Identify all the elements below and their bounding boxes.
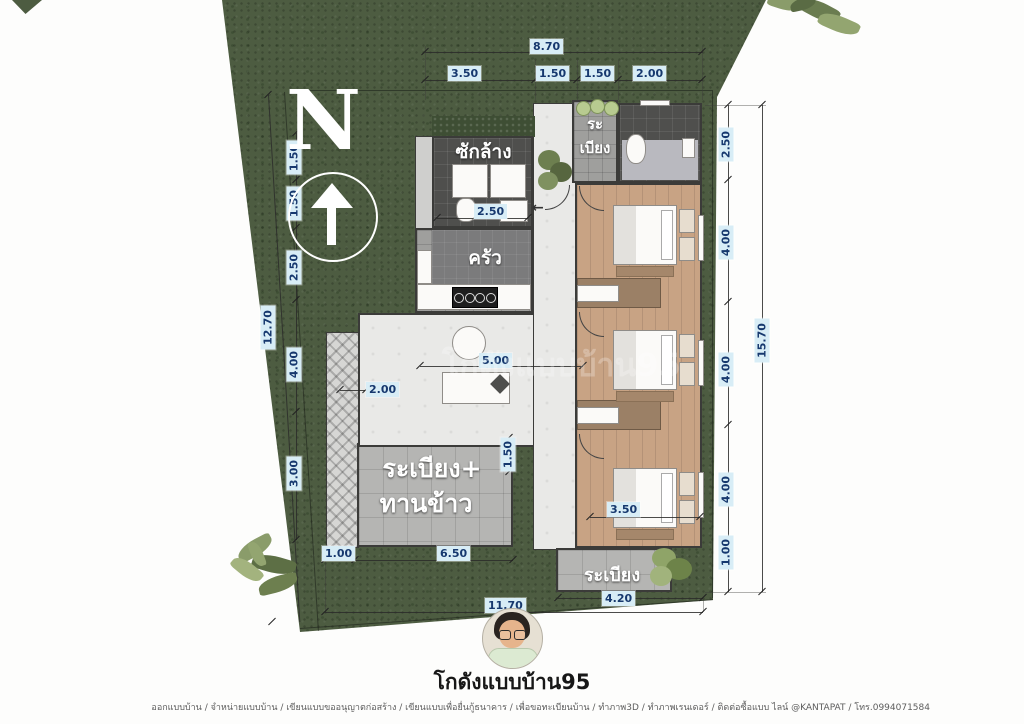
dim-left-3: 2.50 <box>287 251 302 285</box>
stove-icon <box>452 287 498 308</box>
bed-1 <box>613 205 677 265</box>
dim-right-total: 15.70 <box>755 319 770 363</box>
grass-corner-sliver <box>12 0 42 14</box>
dim-terrace-step: 1.50 <box>501 438 516 472</box>
nightstand-2a <box>679 334 695 358</box>
room-label-laundry: ซักล้าง <box>434 137 533 167</box>
bed-rug-3 <box>616 529 674 540</box>
dim-right-1: 2.50 <box>719 128 734 162</box>
dim-right-2: 4.00 <box>719 226 734 260</box>
window-bed3 <box>698 472 704 518</box>
nightstand-3b <box>679 500 695 524</box>
laundry-hedge <box>432 116 535 137</box>
bed-rug-1 <box>616 266 674 277</box>
washing-machine <box>452 164 488 198</box>
dim-right-5: 1.00 <box>719 536 734 570</box>
bathroom-sink <box>682 138 695 158</box>
dim-bottom-right: 4.20 <box>602 591 635 606</box>
dim-top-3: 1.50 <box>581 66 614 81</box>
dim-left-total: 12.70 <box>261 306 276 350</box>
toilet-icon <box>626 134 646 164</box>
dim-walkway-offset: 2.00 <box>366 382 399 397</box>
washing-machine-2 <box>490 164 526 198</box>
dim-bedroom-width: 3.50 <box>607 502 640 517</box>
dim-bottom-2: 6.50 <box>437 546 470 561</box>
nightstand-1a <box>679 209 695 233</box>
avatar-glasses-left <box>499 630 511 640</box>
room-label-kitchen: ครัว <box>445 243 525 273</box>
nightstand-3a <box>679 472 695 496</box>
window-bed2 <box>698 340 704 386</box>
room-label-balcony-top-1: ระ <box>572 112 618 136</box>
nightstand-1b <box>679 237 695 261</box>
dim-left-5: 3.00 <box>287 457 302 491</box>
dim-bottom-1: 1.00 <box>322 546 355 561</box>
footer-services-text: ออกแบบบ้าน / จำหน่ายแบบบ้าน / เขียนแบบขอ… <box>151 700 930 714</box>
nightstand-2b <box>679 362 695 386</box>
room-label-balcony-bottom: ระเบียง <box>558 560 666 589</box>
dim-top-total: 8.70 <box>530 39 563 54</box>
window-bed1 <box>698 215 704 261</box>
room-label-balcony-top-2: เบียง <box>568 136 622 160</box>
bathroom-window <box>640 100 670 106</box>
plan-sheet: ← <box>0 0 1024 724</box>
dim-top-4: 2.00 <box>633 66 666 81</box>
dim-right-4: 4.00 <box>719 473 734 507</box>
dim-top-1: 3.50 <box>448 66 481 81</box>
avatar-glasses-right <box>514 630 526 640</box>
room-label-terrace-2: ทานข้าว <box>346 484 506 524</box>
dim-left-4: 4.00 <box>287 348 302 382</box>
watermark-text: โกดังแบบบ้าน95 <box>442 340 681 391</box>
north-letter: N <box>286 80 361 162</box>
entry-arrow-icon: ← <box>532 200 544 216</box>
room-label-terrace-1: ระเบียง+ <box>352 449 512 489</box>
closet-2 <box>577 407 619 424</box>
brand-avatar <box>482 608 543 669</box>
dim-top-2: 1.50 <box>536 66 569 81</box>
dim-right-3: 4.00 <box>719 353 734 387</box>
kitchen-fridge <box>417 250 432 284</box>
north-arrow-icon <box>288 172 378 262</box>
dim-laundry-width: 2.50 <box>474 204 507 219</box>
bed-3 <box>613 468 677 528</box>
brand-title: โกดังแบบบ้าน95 <box>362 666 662 699</box>
bed-rug-2 <box>616 391 674 402</box>
closet-1 <box>577 285 619 302</box>
